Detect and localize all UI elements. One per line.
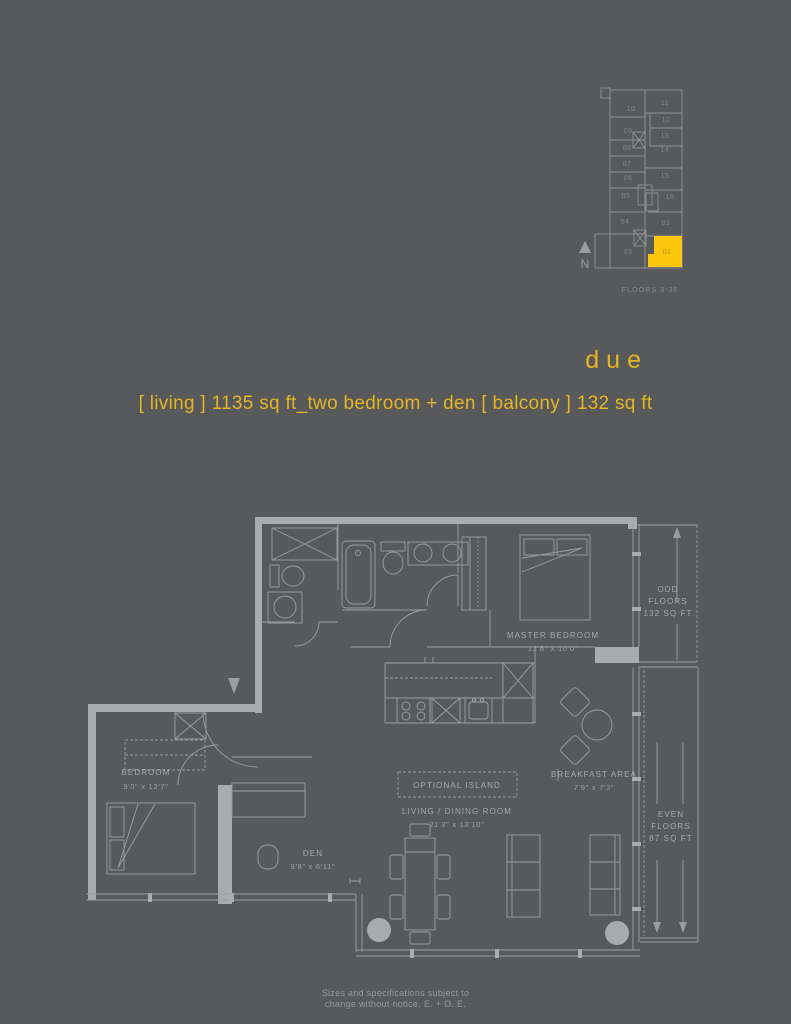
bedroom-label: BEDROOM <box>121 768 170 777</box>
disclaimer: Sizes and specifications subject to chan… <box>0 988 791 1010</box>
kitchen-sink <box>465 698 492 723</box>
unit-number: 13 <box>661 133 670 140</box>
balcony-even-floors: EVEN FLOORS 87 SQ FT <box>640 667 698 942</box>
unit-number: 11 <box>661 100 669 107</box>
unit-number: 07 <box>623 161 632 168</box>
keyplan-unit-numbers: 10 09 08 07 06 05 04 03 11 12 13 14 15 1… <box>621 100 675 256</box>
unit-number: 14 <box>661 147 670 154</box>
den: DEN 9'8" x 6'11" <box>232 757 335 871</box>
unit-number: 03 <box>624 249 633 256</box>
unit-number: 15 <box>661 173 670 180</box>
master-bedroom-label: MASTER BEDROOM <box>507 631 599 640</box>
north-arrow-icon: N <box>579 241 591 271</box>
keyplan-cores <box>633 132 652 246</box>
balcony-odd-line2: FLOORS <box>648 597 688 606</box>
disclaimer-line1: Sizes and specifications subject to <box>0 988 791 999</box>
entry-arrow-icon <box>228 678 240 694</box>
breakfast-area: BREAKFAST AREA 7'9" x 7'3" <box>551 686 637 792</box>
unit-number: 04 <box>621 219 630 226</box>
brochure-page: 10 09 08 07 06 05 04 03 11 12 13 14 15 1… <box>0 0 791 1024</box>
balcony-odd-line3: 132 SQ FT <box>643 609 692 618</box>
balcony-even-line1: EVEN <box>658 810 684 819</box>
floor-plan: ODD FLOORS 132 SQ FT EVEN FLOORS 87 SQ F… <box>80 512 700 962</box>
bathroom <box>342 524 468 610</box>
floors-range-label: FLOORS 3-35 <box>622 285 679 294</box>
column <box>605 921 629 945</box>
powder-room <box>262 524 338 646</box>
pantry <box>503 698 533 723</box>
breakfast-dims: 7'9" x 7'3" <box>574 783 615 792</box>
bedroom-bed <box>107 803 195 874</box>
den-dims: 9'8" x 6'11" <box>291 862 336 871</box>
unit-number: 05 <box>622 193 631 200</box>
balcony-odd-floors: ODD FLOORS 132 SQ FT <box>637 525 697 667</box>
breakfast-label: BREAKFAST AREA <box>551 770 637 779</box>
kitchen <box>385 647 535 723</box>
unit-number: 06 <box>624 175 633 182</box>
optional-island-label: OPTIONAL ISLAND <box>413 781 501 790</box>
highlighted-unit-number: 02 <box>663 249 672 256</box>
bedroom: BEDROOM 9'0" x 12'7" <box>107 713 218 874</box>
page-subtitle: [ living ] 1135 sq ft_two bedroom + den … <box>0 393 791 415</box>
bedroom-dims: 9'0" x 12'7" <box>123 782 168 791</box>
sofa <box>507 835 540 917</box>
living-dining-label: LIVING / DINING ROOM <box>402 807 512 816</box>
unit-number: 09 <box>624 128 633 135</box>
master-bed <box>520 535 590 620</box>
master-bedroom: MASTER BEDROOM 12'6" x 10'0" <box>507 535 599 653</box>
unit-number: 08 <box>623 145 632 152</box>
unit-number: 16 <box>666 194 675 201</box>
unit-number: 01 <box>662 220 671 227</box>
balcony-odd-line1: ODD <box>657 585 678 594</box>
walls <box>88 517 639 904</box>
unit-number: 12 <box>662 117 671 124</box>
living-dining: OPTIONAL ISLAND LIVING / DINING ROOM 21'… <box>350 772 620 944</box>
dining-table <box>390 824 450 944</box>
dishwasher <box>432 698 460 723</box>
fridge <box>503 663 533 698</box>
sofa <box>590 835 620 915</box>
entry <box>203 678 258 767</box>
building-keyplan: 10 09 08 07 06 05 04 03 11 12 13 14 15 1… <box>570 85 700 300</box>
balcony-even-line3: 87 SQ FT <box>649 834 692 843</box>
north-label: N <box>581 257 590 271</box>
den-label: DEN <box>303 849 323 858</box>
disclaimer-line2: change without notice. E. + O. E. <box>0 999 791 1010</box>
balcony-even-line2: FLOORS <box>651 822 691 831</box>
unit-number: 10 <box>627 106 636 113</box>
page-title: due <box>0 346 648 375</box>
column <box>367 918 391 942</box>
master-bedroom-dims: 12'6" x 10'0" <box>528 644 578 653</box>
stove <box>397 698 430 723</box>
window-walls <box>86 524 641 958</box>
living-dining-dims: 21'3" x 13'10" <box>429 820 484 829</box>
